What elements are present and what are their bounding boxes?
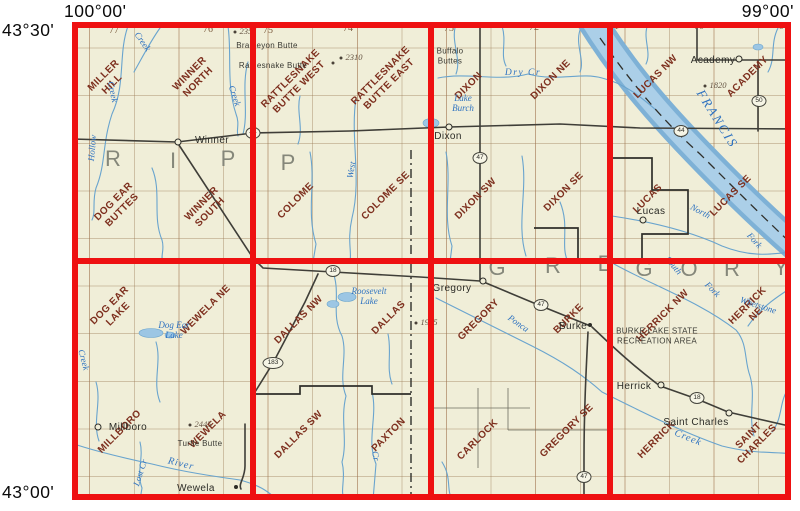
route-shield: 18 (690, 392, 705, 404)
quad-label: DOG EAR LAKE (88, 284, 139, 335)
county-letter: P (281, 152, 296, 174)
spot-dot (430, 49, 433, 52)
county-letter: R (105, 148, 121, 170)
town-label: Dixon (434, 132, 462, 142)
feature-label: Buffalo Buttes (437, 46, 464, 65)
route-shield: 183 (263, 357, 284, 369)
township-number: 76 (203, 25, 213, 35)
township-number: 75 (263, 26, 273, 36)
town-label: Gregory (433, 284, 472, 294)
elevation-spot-dot (189, 424, 192, 427)
latitude-label-top: 43°30' (2, 20, 54, 41)
route-shield: 44 (246, 127, 261, 139)
township-number: 72 (529, 23, 539, 33)
town-label: Lucas (637, 207, 666, 217)
water-label: Creek (226, 84, 242, 107)
water-label: Creek (673, 428, 704, 449)
route-shield: 47 (473, 152, 488, 164)
quad-label: DOG EAR BUTTES (92, 180, 143, 231)
feature-label: Bradleyon Butte (236, 41, 297, 51)
feature-label: Turtle Butte (178, 439, 223, 449)
town-marker (588, 323, 592, 327)
water-label: Fork (744, 231, 763, 251)
water-label: Creek (132, 30, 152, 53)
water-label: West (346, 161, 359, 179)
town-marker (446, 124, 453, 131)
quad-index-map: 100°00' 99°00' 43°30' 43°00' (0, 0, 800, 511)
town-label: Wewela (177, 484, 215, 494)
latitude-label-bottom: 43°00' (2, 482, 54, 503)
map-area: MILLER HILLWINNER NORTHRATTLESNAKE BUTTE… (72, 22, 791, 500)
route-shield: 44 (674, 125, 689, 137)
town-label: Winner (195, 136, 229, 146)
quad-label: DALLAS NW (272, 293, 325, 346)
quad-label: COLOME SE (359, 169, 412, 222)
water-label: Lake Burch (452, 94, 474, 114)
spot-dot (332, 62, 335, 65)
town-label: Millboro (109, 423, 147, 433)
elevation-label: 1820 (710, 81, 727, 90)
county-letter: P (221, 148, 236, 170)
township-number: 70 (694, 22, 704, 32)
water-label: Roosevelt Lake (352, 287, 387, 307)
township-number: 6 (779, 22, 784, 32)
quad-label: GREGORY (456, 297, 502, 343)
water-label: Hollow (87, 134, 99, 161)
elevation-spot-dot (234, 31, 237, 34)
town-label: Saint Charles (663, 418, 728, 428)
route-shield: 50 (752, 95, 767, 107)
elevation-spot-dot (704, 85, 707, 88)
quad-label: GREGORY SE (538, 402, 596, 460)
quad-label: RATTLESNAKE BUTTE WEST (259, 47, 330, 118)
county-letter: G (488, 257, 505, 279)
quad-label: CARLOCK (455, 417, 500, 462)
township-number: 73 (444, 24, 454, 34)
county-letter: R (545, 255, 561, 277)
water-label: Cr (369, 450, 380, 461)
county-letter: Y (774, 257, 789, 279)
township-number: 71 (609, 22, 619, 32)
water-label: Dry Cr (505, 68, 541, 78)
town-label: Burke (559, 322, 587, 332)
township-number: 77 (109, 26, 119, 36)
elevation-label: 2310 (346, 53, 363, 62)
quad-label: PAXTON (370, 416, 409, 455)
quad-label: WINNER SOUTH (183, 185, 230, 232)
water-label: River (167, 455, 196, 472)
town-marker (95, 424, 102, 431)
quad-label: LUCAS SE (708, 173, 754, 219)
quad-label: DIXON SW (453, 176, 499, 222)
water-label: Lost Cr (132, 459, 150, 488)
quad-label: WINNER NORTH (171, 55, 218, 102)
quad-label: DIXON SE (542, 170, 586, 214)
town-marker (726, 410, 733, 417)
county-letter: I (170, 150, 176, 172)
quad-label: DIXON NE (529, 58, 574, 103)
water-label: Dog Ear Lake (158, 321, 189, 341)
elevation-label: 1955 (421, 318, 438, 327)
town-marker (234, 485, 238, 489)
elevation-label: 2355 (240, 27, 257, 36)
town-marker (736, 56, 743, 63)
county-letter: E (598, 253, 613, 275)
route-shield: 47 (577, 471, 592, 483)
feature-label: Rattlesnake Butte (239, 61, 307, 71)
longitude-label-left: 100°00' (64, 1, 127, 22)
longitude-label-right: 99°00' (742, 1, 794, 22)
town-marker (640, 217, 647, 224)
elevation-label: 2445 (195, 420, 212, 429)
town-marker (175, 139, 182, 146)
water-label: North (688, 203, 711, 222)
elevation-spot-dot (415, 322, 418, 325)
quad-label: SAINT CHARLES (727, 414, 779, 466)
map-labels: MILLER HILLWINNER NORTHRATTLESNAKE BUTTE… (72, 22, 791, 500)
water-label: Creek (75, 349, 90, 372)
town-marker (480, 278, 487, 285)
quad-label: LUCAS NW (632, 53, 681, 102)
county-letter: R (724, 258, 740, 280)
county-letter: G (635, 258, 652, 280)
feature-label: BURKE LAKE STATE RECREATION AREA (616, 326, 698, 345)
quad-label: COLOME (276, 181, 317, 222)
town-label: Herrick (617, 382, 651, 392)
town-marker (658, 382, 665, 389)
water-label: Fork (702, 280, 721, 299)
water-label: Ponca (506, 313, 531, 334)
township-number: 74 (343, 24, 353, 34)
route-shield: 47 (534, 299, 549, 311)
quad-label: DALLAS SW (273, 409, 326, 462)
route-shield: 18 (326, 265, 341, 277)
town-label: Academy (691, 56, 736, 66)
elevation-spot-dot (340, 57, 343, 60)
